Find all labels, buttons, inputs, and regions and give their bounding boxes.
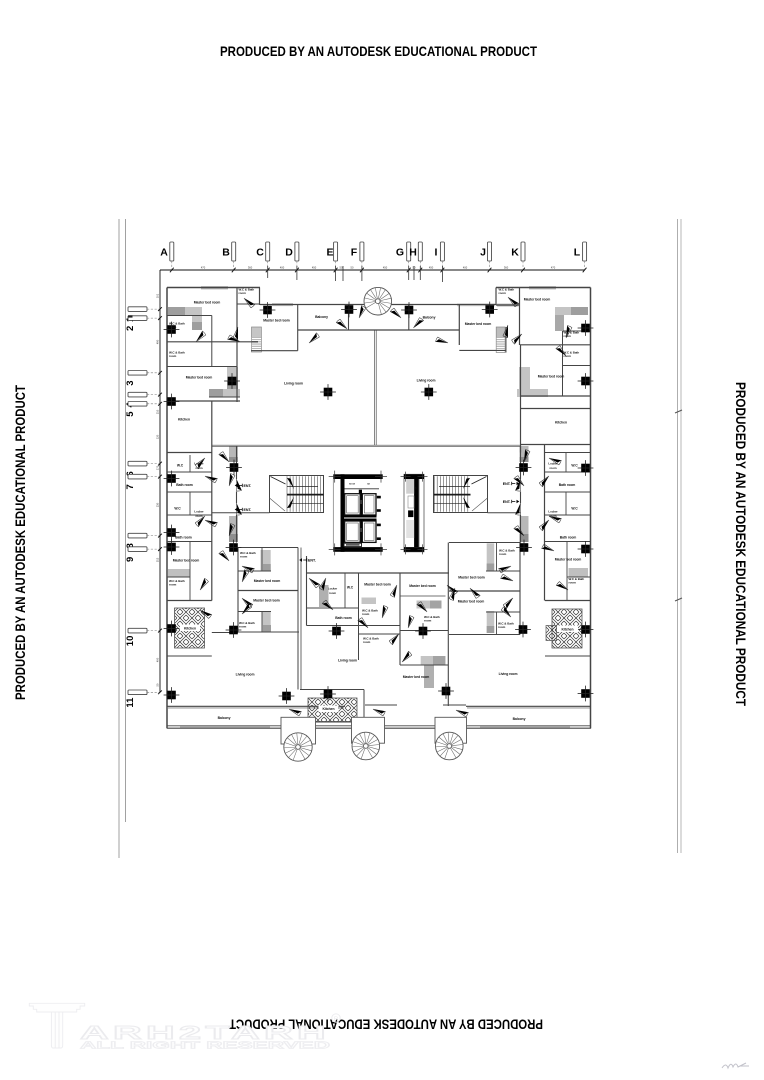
svg-text:ALL RIGHT RESERVED: ALL RIGHT RESERVED <box>80 1040 331 1052</box>
svg-text:I: I <box>435 247 438 259</box>
svg-text:ENT.: ENT. <box>308 559 316 563</box>
svg-text:W.C: W.C <box>347 586 354 590</box>
svg-text:Master bed room: Master bed room <box>465 322 492 326</box>
svg-text:2: 2 <box>125 326 136 331</box>
svg-text:7: 7 <box>125 484 136 489</box>
svg-text:room: room <box>549 514 557 518</box>
svg-text:room: room <box>499 291 507 295</box>
svg-text:Living room: Living room <box>417 379 436 383</box>
svg-text:Balcony: Balcony <box>513 717 526 721</box>
svg-text:470: 470 <box>201 265 206 269</box>
svg-text:450: 450 <box>429 265 434 269</box>
svg-text:C: C <box>256 247 264 259</box>
svg-text:Locker: Locker <box>328 587 338 591</box>
svg-text:room: room <box>424 619 432 623</box>
svg-text:Master bed room: Master bed room <box>409 584 436 588</box>
svg-text:Kitchen: Kitchen <box>555 421 567 425</box>
svg-text:Locker: Locker <box>548 462 558 466</box>
svg-text:400: 400 <box>155 657 159 662</box>
svg-text:Kitchen: Kitchen <box>178 418 190 422</box>
svg-text:H: H <box>409 247 417 259</box>
svg-text:W.C: W.C <box>571 507 578 511</box>
svg-text:Balcony: Balcony <box>423 316 436 320</box>
svg-text:Master bed room: Master bed room <box>173 559 200 563</box>
svg-text:Master bed room: Master bed room <box>194 301 221 305</box>
svg-text:360: 360 <box>504 265 509 269</box>
svg-text:490: 490 <box>155 339 159 344</box>
svg-text:10: 10 <box>125 636 136 647</box>
svg-text:Master bed room: Master bed room <box>263 319 290 323</box>
svg-text:400: 400 <box>280 265 285 269</box>
svg-text:J: J <box>480 247 486 259</box>
svg-text:room: room <box>169 583 177 587</box>
svg-text:room: room <box>569 581 577 585</box>
svg-text:room: room <box>564 334 572 338</box>
svg-text:ENT.: ENT. <box>503 482 511 486</box>
svg-text:360: 360 <box>248 265 253 269</box>
svg-text:A: A <box>160 247 168 259</box>
svg-text:ENT.: ENT. <box>503 500 511 504</box>
svg-text:Living room: Living room <box>284 382 303 386</box>
svg-text:room: room <box>499 552 507 556</box>
svg-text:230: 230 <box>155 502 159 507</box>
svg-text:450: 450 <box>383 265 388 269</box>
svg-text:Bath room: Bath room <box>335 616 352 620</box>
svg-text:Master bed room: Master bed room <box>458 600 485 604</box>
svg-text:Master bed room: Master bed room <box>524 298 551 302</box>
svg-text:room: room <box>169 354 177 358</box>
svg-text:Master bed room: Master bed room <box>253 599 280 603</box>
svg-text:room: room <box>195 514 203 518</box>
svg-text:450: 450 <box>312 265 317 269</box>
svg-text:Bath room: Bath room <box>559 483 576 487</box>
svg-text:11: 11 <box>125 697 136 708</box>
svg-text:210: 210 <box>155 409 159 414</box>
svg-text:room: room <box>564 354 572 358</box>
svg-text:W.C: W.C <box>174 507 181 511</box>
svg-text:E: E <box>326 247 333 259</box>
svg-text:Bath room: Bath room <box>175 536 192 540</box>
svg-text:Kitchen: Kitchen <box>322 707 334 711</box>
svg-text:room: room <box>363 640 371 644</box>
svg-text:PRODUCED BY AN AUTODESK EDUCAT: PRODUCED BY AN AUTODESK EDUCATIONAL PROD… <box>220 43 537 59</box>
svg-text:room: room <box>362 612 370 616</box>
svg-text:D: D <box>285 247 293 259</box>
svg-text:room: room <box>239 625 247 629</box>
svg-text:room: room <box>239 291 247 295</box>
svg-text:PRODUCED BY AN AUTODESK EDUCAT: PRODUCED BY AN AUTODESK EDUCATIONAL PROD… <box>12 385 28 700</box>
svg-text:120: 120 <box>155 434 159 439</box>
svg-text:G: G <box>396 247 404 259</box>
svg-text:Master bed room: Master bed room <box>364 583 391 587</box>
svg-text:Bath room: Bath room <box>560 536 577 540</box>
svg-text:room: room <box>195 466 203 470</box>
svg-text:Locker: Locker <box>194 462 204 466</box>
svg-text:B: B <box>222 247 230 259</box>
svg-text:K: K <box>511 247 519 259</box>
svg-text:Locker: Locker <box>548 510 558 514</box>
svg-text:Kitchen: Kitchen <box>561 628 573 632</box>
svg-text:Master bed room: Master bed room <box>538 375 565 379</box>
svg-text:9: 9 <box>125 557 136 562</box>
svg-text:room: room <box>549 466 557 470</box>
svg-text:Kitchen: Kitchen <box>184 627 196 631</box>
svg-text:3: 3 <box>125 380 136 385</box>
svg-text:Master bed room: Master bed room <box>458 576 485 580</box>
svg-text:5: 5 <box>125 411 136 417</box>
svg-text:PRODUCED BY AN AUTODESK EDUCAT: PRODUCED BY AN AUTODESK EDUCATIONAL PROD… <box>733 382 749 706</box>
svg-text:L: L <box>574 247 581 259</box>
svg-text:W.C: W.C <box>177 464 184 468</box>
svg-text:400: 400 <box>463 265 468 269</box>
svg-text:ENT.: ENT. <box>244 508 252 512</box>
svg-text:Locker: Locker <box>194 510 204 514</box>
svg-text:xx xx: xx xx <box>349 484 355 486</box>
svg-text:101: 101 <box>155 293 159 298</box>
svg-text:515: 515 <box>155 557 159 562</box>
svg-text:W.C: W.C <box>571 464 578 468</box>
svg-text:Living room: Living room <box>338 659 357 663</box>
svg-text:Master bed room: Master bed room <box>403 675 430 679</box>
svg-text:R: R <box>334 1017 339 1023</box>
svg-text:Living room: Living room <box>499 672 518 676</box>
svg-text:470: 470 <box>551 265 556 269</box>
svg-text:room: room <box>240 555 248 559</box>
svg-text:170: 170 <box>155 465 159 470</box>
svg-text:F: F <box>351 247 358 259</box>
svg-text:Balcony: Balcony <box>218 716 231 720</box>
svg-text:Bath room: Bath room <box>176 483 193 487</box>
svg-text:Balcony: Balcony <box>315 315 328 319</box>
svg-text:Master bed room: Master bed room <box>186 376 213 380</box>
svg-text:Living room: Living room <box>236 673 255 677</box>
svg-text:ENT.: ENT. <box>244 484 252 488</box>
svg-text:Master bed room: Master bed room <box>555 558 582 562</box>
svg-text:room: room <box>169 325 177 329</box>
svg-text:room: room <box>498 625 506 629</box>
svg-text:Master bed room: Master bed room <box>254 579 281 583</box>
svg-text:room: room <box>329 591 337 595</box>
